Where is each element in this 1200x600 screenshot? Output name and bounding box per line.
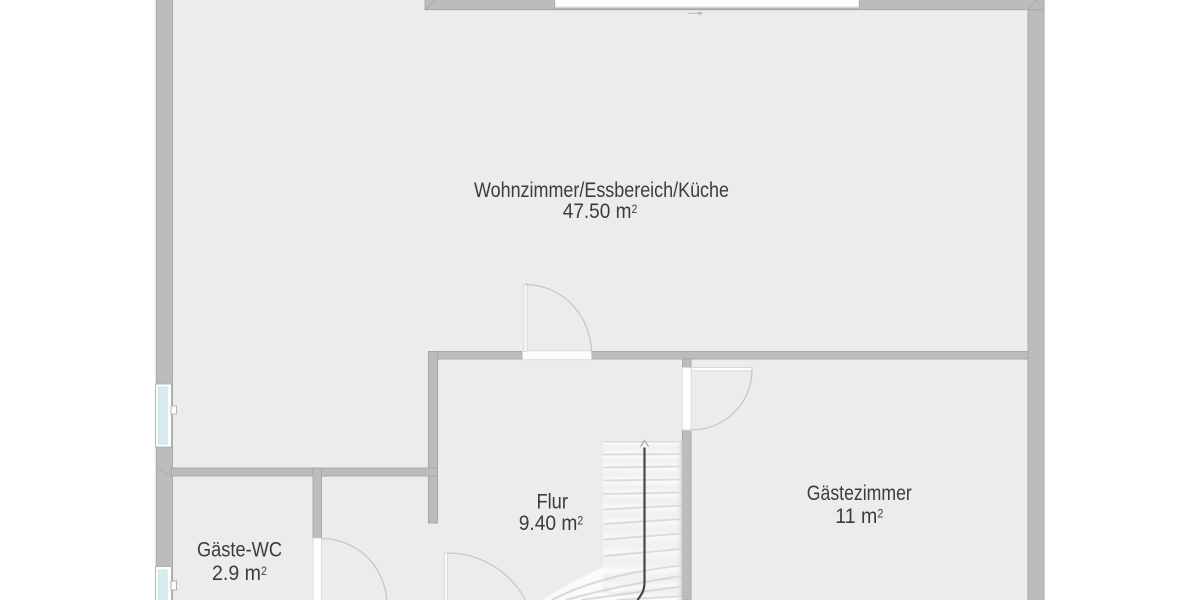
- svg-text:11 m2: 11 m2: [835, 505, 883, 528]
- svg-text:2.9 m2: 2.9 m2: [212, 562, 267, 585]
- svg-text:9.40 m2: 9.40 m2: [519, 512, 584, 535]
- svg-text:Gäste-WC: Gäste-WC: [197, 538, 282, 561]
- svg-text:Wohnzimmer/Essbereich/Küche: Wohnzimmer/Essbereich/Küche: [474, 179, 729, 202]
- svg-text:Flur: Flur: [536, 490, 568, 513]
- svg-text:Gästezimmer: Gästezimmer: [807, 482, 912, 505]
- svg-text:47.50 m2: 47.50 m2: [563, 200, 638, 223]
